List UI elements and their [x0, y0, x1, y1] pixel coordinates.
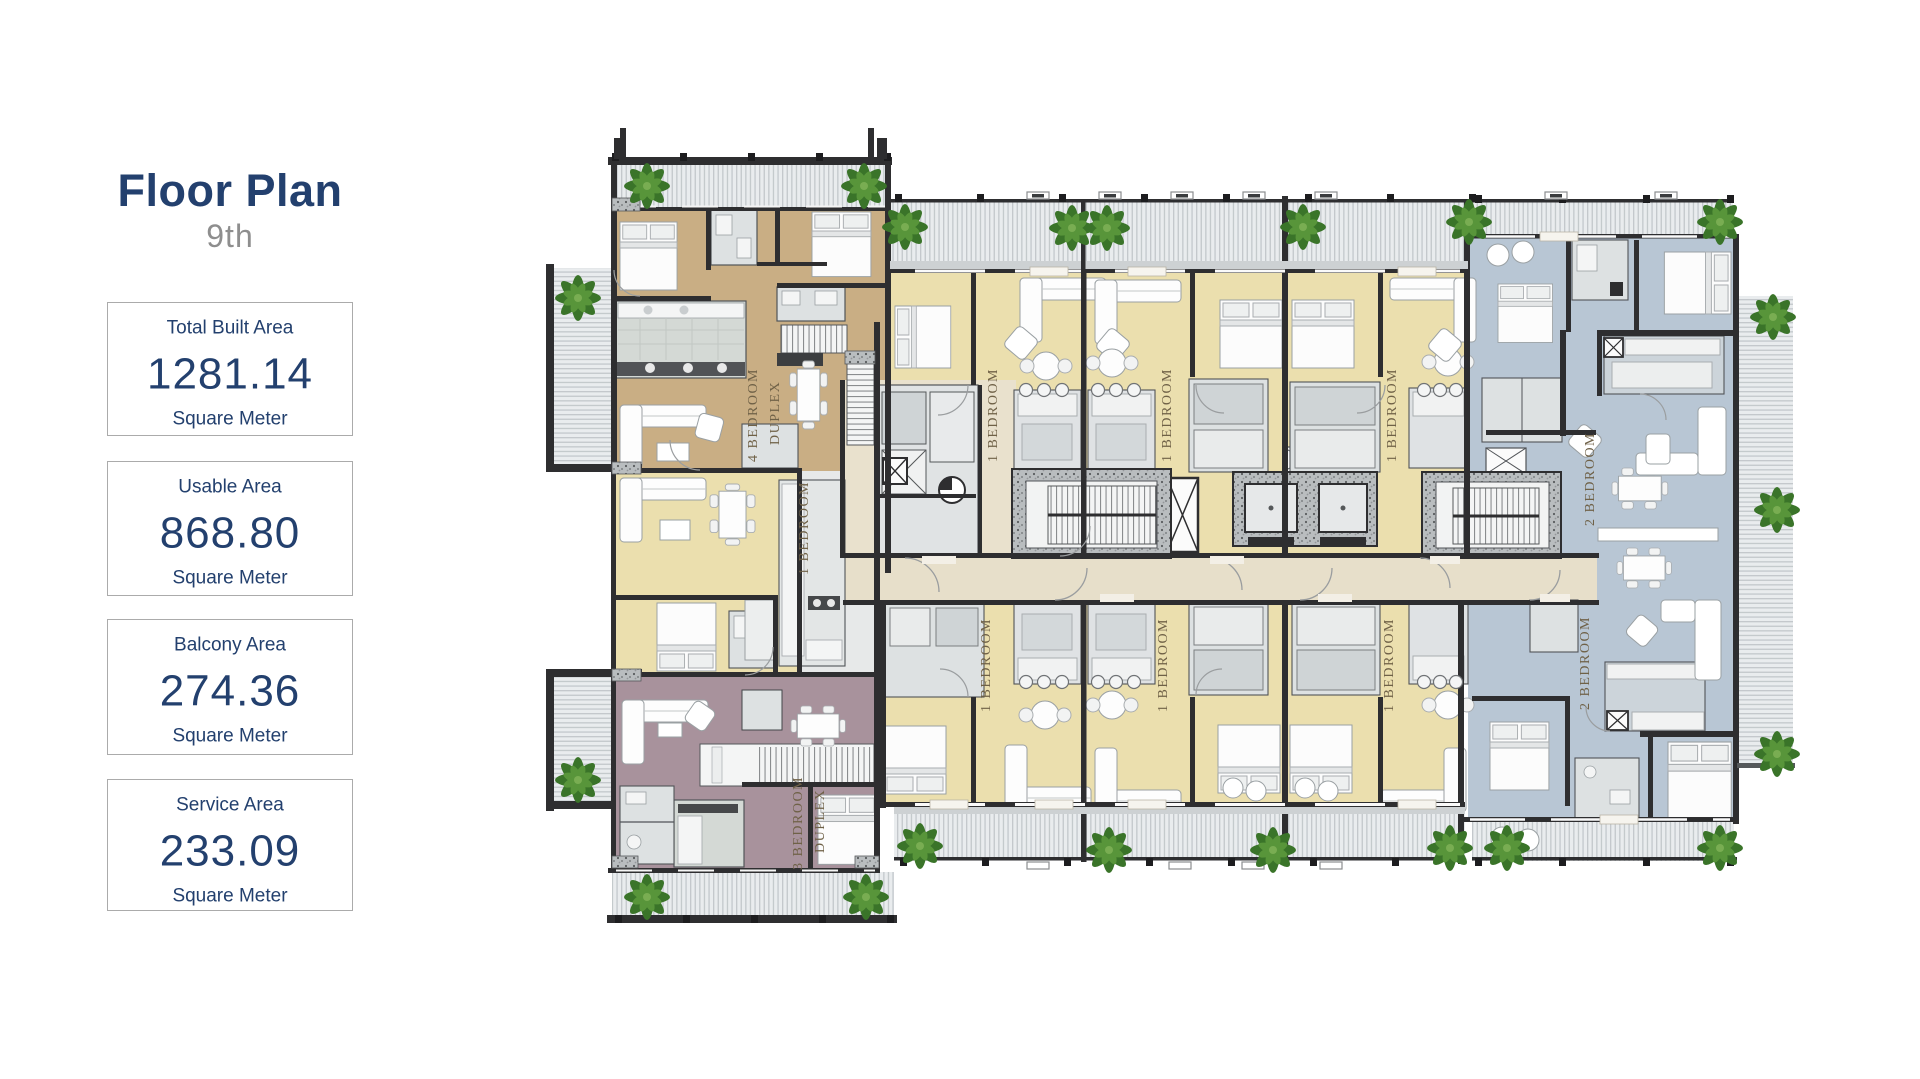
- svg-text:Usable Area: Usable Area: [178, 477, 282, 498]
- svg-text:1 BEDROOM: 1 BEDROOM: [986, 368, 1001, 462]
- svg-text:Floor Plan: Floor Plan: [117, 165, 342, 216]
- svg-text:274.36: 274.36: [160, 667, 301, 716]
- svg-text:1 BEDROOM: 1 BEDROOM: [1160, 368, 1175, 462]
- svg-text:1 BEDROOM: 1 BEDROOM: [1156, 618, 1171, 712]
- svg-text:2 BEDROOM: 2 BEDROOM: [1583, 432, 1598, 526]
- svg-text:868.80: 868.80: [160, 509, 301, 558]
- svg-text:2 BEDROOM: 2 BEDROOM: [1578, 616, 1593, 710]
- svg-text:1 BEDROOM: 1 BEDROOM: [797, 481, 812, 575]
- svg-text:Balcony Area: Balcony Area: [174, 635, 286, 656]
- svg-text:3 BEDROOM: 3 BEDROOM: [791, 776, 806, 870]
- svg-text:DUPLEX: DUPLEX: [768, 381, 783, 445]
- svg-text:Service Area: Service Area: [176, 795, 284, 816]
- svg-text:4 BEDROOM: 4 BEDROOM: [746, 368, 761, 462]
- svg-text:1 BEDROOM: 1 BEDROOM: [1385, 368, 1400, 462]
- svg-text:DUPLEX: DUPLEX: [813, 789, 828, 853]
- svg-text:Square Meter: Square Meter: [172, 409, 288, 430]
- svg-text:233.09: 233.09: [160, 827, 301, 876]
- svg-text:Square Meter: Square Meter: [172, 726, 288, 747]
- svg-text:1 BEDROOM: 1 BEDROOM: [979, 618, 994, 712]
- svg-text:Square Meter: Square Meter: [172, 886, 288, 907]
- svg-text:1281.14: 1281.14: [147, 350, 313, 399]
- svg-text:Square Meter: Square Meter: [172, 568, 288, 589]
- svg-text:1 BEDROOM: 1 BEDROOM: [1382, 618, 1397, 712]
- svg-text:9th: 9th: [206, 218, 253, 254]
- svg-text:Total Built Area: Total Built Area: [167, 318, 294, 339]
